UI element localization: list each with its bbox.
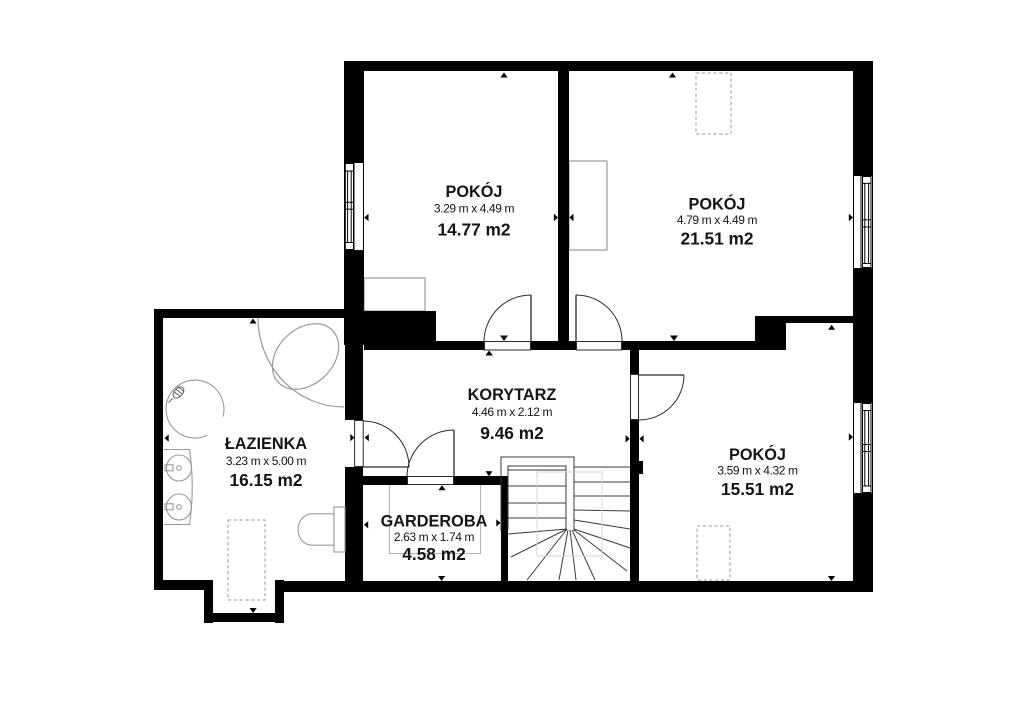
svg-text:16.15 m2: 16.15 m2 (229, 470, 302, 490)
svg-text:GARDEROBA: GARDEROBA (381, 513, 488, 531)
svg-text:POKÓJ: POKÓJ (688, 195, 745, 214)
svg-text:4.46 m x 2.12 m: 4.46 m x 2.12 m (472, 405, 553, 419)
svg-text:21.51 m2: 21.51 m2 (680, 229, 753, 249)
svg-text:4.79 m x 4.49 m: 4.79 m x 4.49 m (677, 213, 758, 227)
svg-text:3.59 m x 4.32 m: 3.59 m x 4.32 m (717, 464, 798, 478)
svg-text:KORYTARZ: KORYTARZ (468, 386, 557, 404)
svg-text:POKÓJ: POKÓJ (729, 445, 786, 464)
svg-text:15.51 m2: 15.51 m2 (721, 479, 794, 499)
svg-text:14.77 m2: 14.77 m2 (437, 220, 510, 240)
svg-text:3.23 m x 5.00 m: 3.23 m x 5.00 m (226, 454, 307, 468)
svg-text:POKÓJ: POKÓJ (445, 182, 502, 201)
svg-text:2.63 m x 1.74 m: 2.63 m x 1.74 m (394, 530, 475, 544)
svg-text:9.46 m2: 9.46 m2 (480, 423, 543, 443)
svg-text:3.29 m x 4.49 m: 3.29 m x 4.49 m (434, 202, 515, 216)
svg-text:4.58 m2: 4.58 m2 (402, 544, 465, 564)
svg-text:ŁAZIENKA: ŁAZIENKA (225, 435, 308, 453)
